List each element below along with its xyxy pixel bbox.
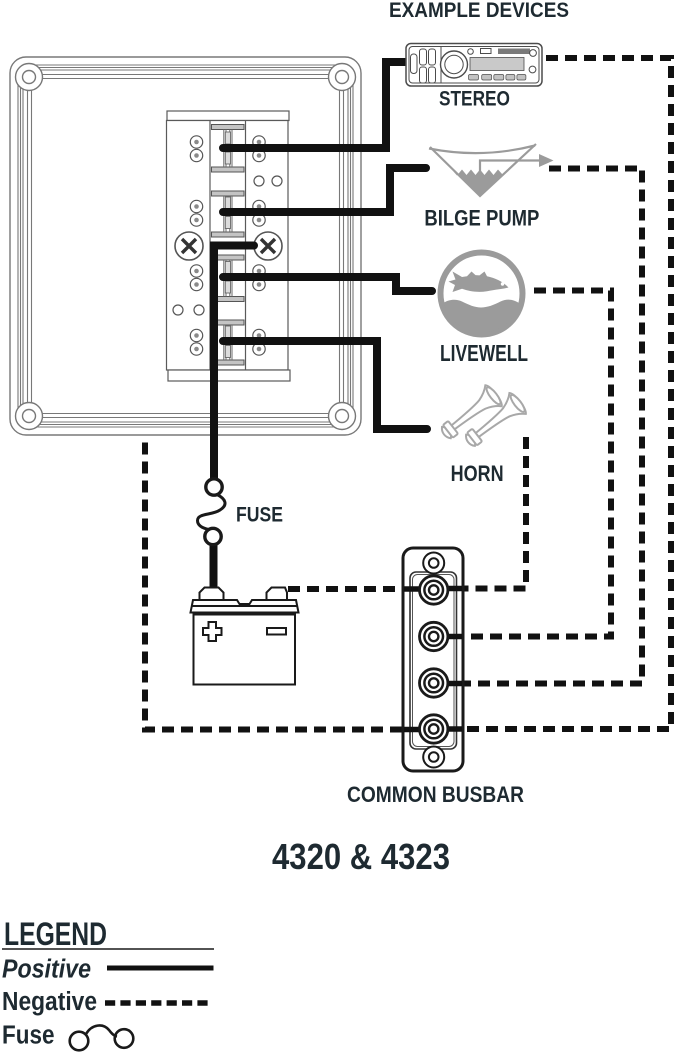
svg-text:LEGEND: LEGEND — [4, 916, 107, 952]
svg-text:EXAMPLE DEVICES: EXAMPLE DEVICES — [389, 0, 569, 22]
svg-text:COMMON BUSBAR: COMMON BUSBAR — [347, 782, 524, 807]
svg-text:BILGE PUMP: BILGE PUMP — [424, 206, 539, 231]
svg-text:Positive: Positive — [2, 956, 91, 984]
svg-text:Fuse: Fuse — [2, 1022, 55, 1050]
svg-text:STEREO: STEREO — [439, 88, 510, 111]
svg-text:HORN: HORN — [451, 461, 504, 486]
svg-text:LIVEWELL: LIVEWELL — [440, 340, 528, 366]
svg-text:FUSE: FUSE — [236, 504, 283, 527]
svg-text:4320 & 4323: 4320 & 4323 — [272, 836, 450, 877]
svg-text:Negative: Negative — [2, 988, 97, 1016]
